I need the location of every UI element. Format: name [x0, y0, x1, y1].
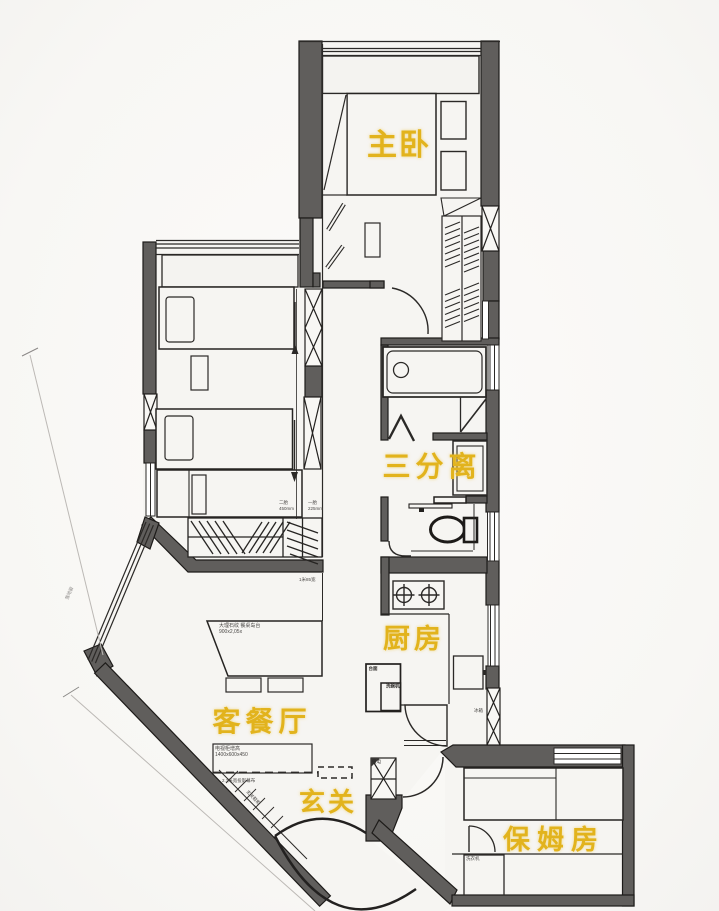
svg-text:冰箱: 冰箱 [474, 707, 483, 714]
svg-text:二胎: 二胎 [279, 499, 288, 506]
svg-text:主卧: 主卧 [367, 129, 431, 162]
svg-text:225mm: 225mm [308, 506, 323, 511]
svg-text:大理石纹 餐桌岛台: 大理石纹 餐桌岛台 [219, 622, 260, 629]
svg-text:保姆房: 保姆房 [502, 825, 605, 855]
svg-text:一胎: 一胎 [308, 499, 317, 506]
svg-text:台面: 台面 [369, 665, 378, 672]
svg-text:洗衣机: 洗衣机 [466, 855, 480, 862]
svg-text:厨房: 厨房 [383, 624, 445, 654]
svg-text:强电: 强电 [372, 758, 381, 765]
svg-text:900x2,05x: 900x2,05x [219, 629, 243, 635]
svg-text:2.7米宽投影幕布: 2.7米宽投影幕布 [222, 777, 256, 784]
svg-text:450mm: 450mm [279, 506, 294, 511]
svg-text:1400x600x450: 1400x600x450 [215, 752, 248, 758]
svg-text:三分离: 三分离 [382, 450, 481, 482]
svg-text:玄关: 玄关 [299, 787, 357, 817]
svg-text:洗碗机: 洗碗机 [386, 683, 400, 690]
svg-text:电视柜增高: 电视柜增高 [215, 745, 240, 752]
svg-text:客餐厅: 客餐厅 [212, 705, 311, 737]
svg-text:1米85宽: 1米85宽 [299, 576, 316, 583]
